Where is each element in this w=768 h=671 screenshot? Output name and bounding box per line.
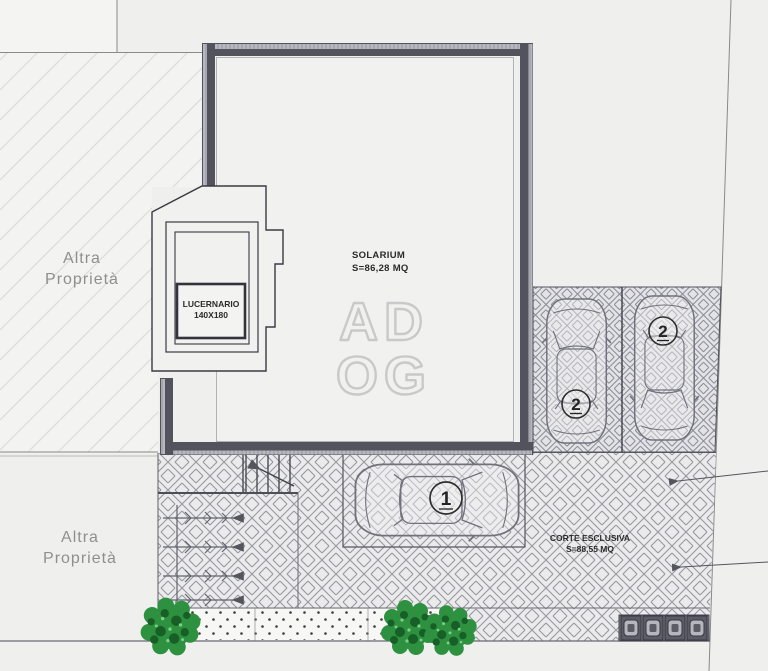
floor-plan-svg: Altra Proprietà Altra Proprietà 2 2 bbox=[0, 0, 768, 671]
parking-stall-left-badge: 2 bbox=[562, 390, 590, 418]
waste-bins bbox=[619, 615, 709, 641]
watermark-line2: OG bbox=[336, 346, 432, 406]
parking-area: 2 2 bbox=[533, 287, 721, 452]
watermark-line1: AD bbox=[339, 292, 429, 352]
watermark: AD OG bbox=[336, 292, 432, 406]
driveway-car-badge: 1 bbox=[430, 482, 462, 514]
lucernario-structure: LUCERNARIO 140X180 bbox=[152, 186, 283, 371]
driveway-car-number: 1 bbox=[441, 489, 452, 510]
solarium-area: S=86,28 MQ bbox=[352, 263, 409, 274]
lucernario-label: LUCERNARIO bbox=[183, 299, 240, 309]
other-property-bottom-label-line1: Altra bbox=[61, 529, 99, 546]
parking-stall-left-number: 2 bbox=[571, 395, 580, 414]
other-property-top-label-line1: Altra bbox=[63, 250, 101, 267]
floor-plan-canvas: Altra Proprietà Altra Proprietà 2 2 bbox=[0, 0, 768, 671]
lucernario-size: 140X180 bbox=[194, 310, 228, 320]
parking-stall-right-badge: 2 bbox=[649, 317, 677, 345]
solarium-label: SOLARIUM bbox=[352, 250, 405, 261]
other-property-bottom-label-line2: Proprietà bbox=[43, 550, 117, 567]
parking-stall-right-number: 2 bbox=[658, 322, 667, 341]
parked-car-left bbox=[542, 299, 611, 443]
other-property-top-label-line2: Proprietà bbox=[45, 271, 119, 288]
corte-esclusiva-area: S=88,55 MQ bbox=[566, 544, 614, 554]
corte-esclusiva-label: CORTE ESCLUSIVA bbox=[550, 533, 630, 543]
